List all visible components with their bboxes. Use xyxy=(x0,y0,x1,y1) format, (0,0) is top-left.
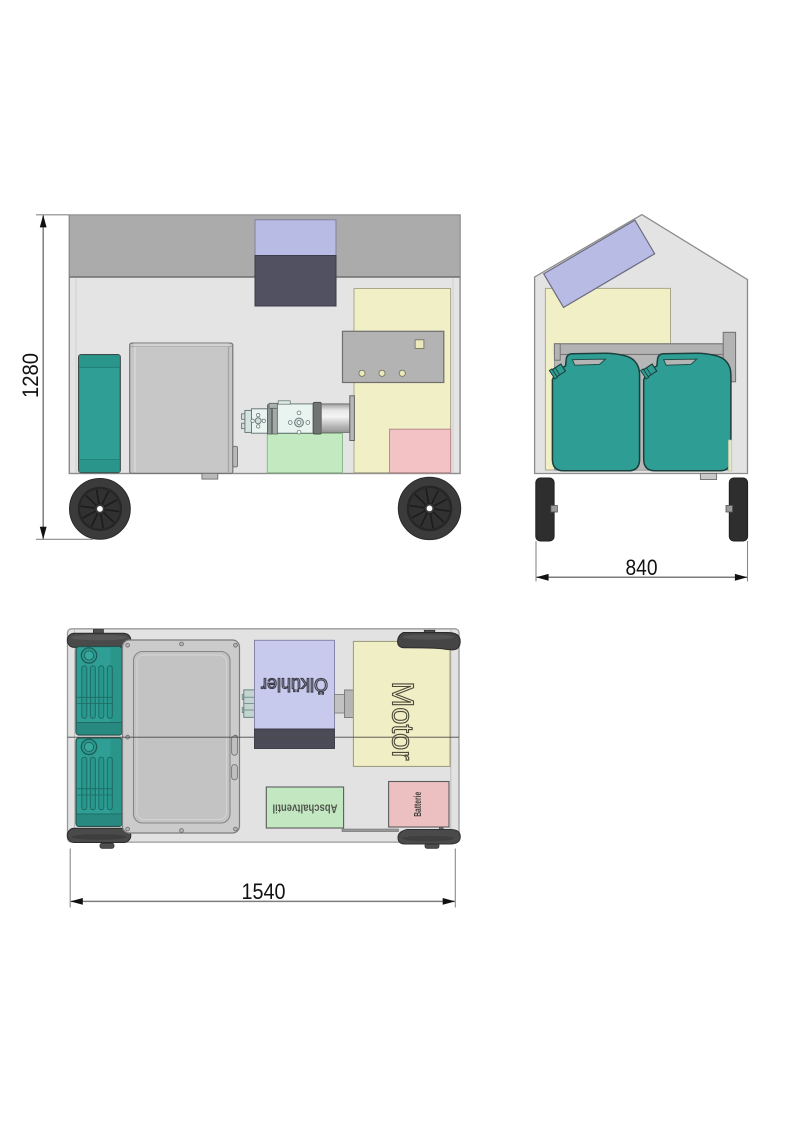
svg-text:840: 840 xyxy=(626,555,658,580)
svg-text:1280: 1280 xyxy=(18,353,43,398)
svg-text:Abschaltventil: Abschaltventil xyxy=(273,801,338,815)
svg-text:Ölkühler: Ölkühler xyxy=(261,674,328,694)
svg-text:1540: 1540 xyxy=(242,879,286,904)
svg-text:Motor: Motor xyxy=(385,681,420,760)
svg-text:Batterie: Batterie xyxy=(413,792,424,817)
